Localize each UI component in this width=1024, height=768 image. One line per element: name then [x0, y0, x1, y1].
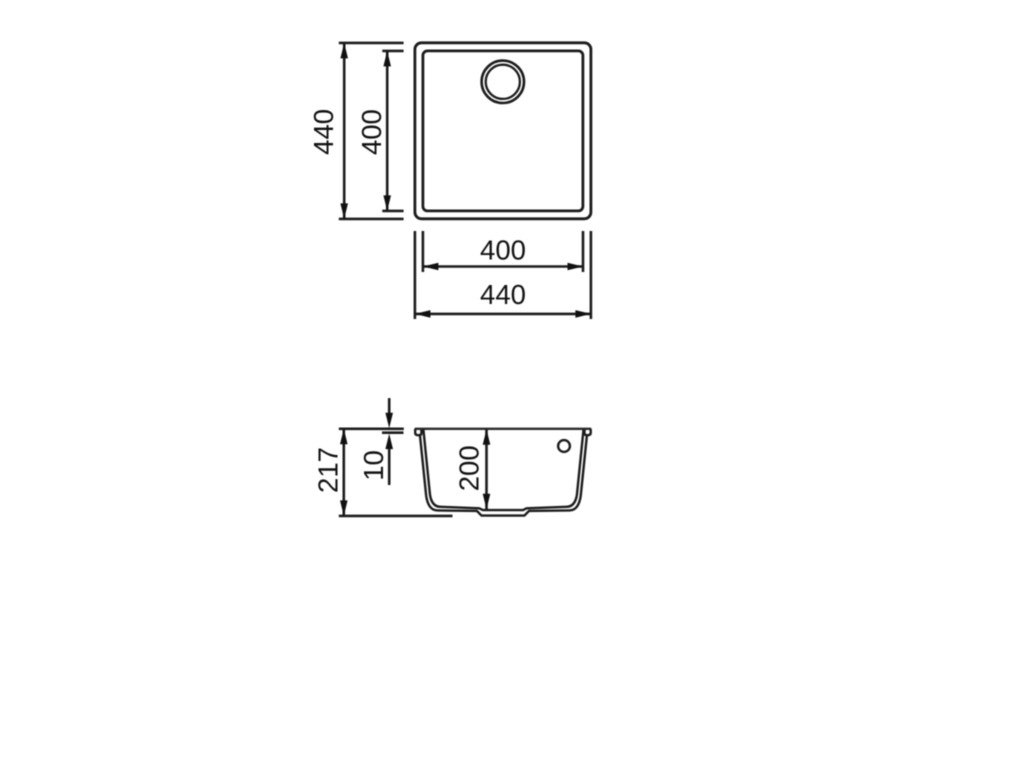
svg-text:400: 400: [480, 235, 526, 266]
svg-text:440: 440: [480, 279, 526, 310]
svg-text:440: 440: [308, 109, 339, 155]
svg-text:217: 217: [313, 447, 344, 493]
svg-text:400: 400: [356, 109, 387, 155]
svg-text:10: 10: [358, 450, 389, 481]
svg-text:200: 200: [453, 445, 484, 491]
